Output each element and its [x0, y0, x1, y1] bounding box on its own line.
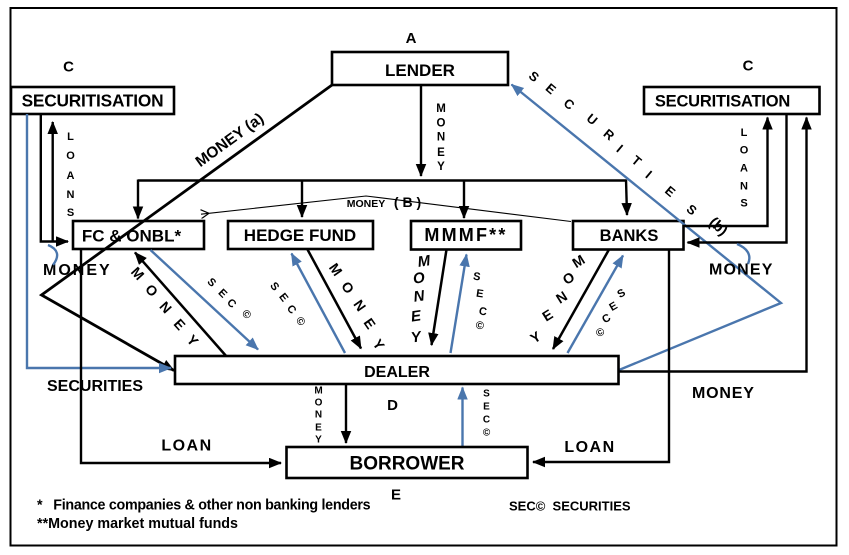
svg-text:HEDGE FUND: HEDGE FUND [244, 226, 356, 245]
svg-text:Y: Y [315, 435, 322, 446]
svg-text:C: C [63, 59, 74, 76]
svg-text:LENDER: LENDER [385, 61, 455, 80]
svg-text:MONEY: MONEY [692, 385, 755, 402]
svg-text:E: E [483, 402, 490, 413]
svg-text:LOAN: LOAN [161, 437, 212, 454]
svg-text:Y: Y [437, 161, 445, 173]
svg-text:L: L [67, 131, 74, 143]
svg-text:S: S [740, 198, 747, 210]
svg-text:MMMF**: MMMF** [424, 225, 507, 245]
svg-text:©: © [483, 428, 491, 439]
svg-text:BANKS: BANKS [600, 227, 659, 245]
svg-text:BORROWER: BORROWER [349, 454, 464, 475]
svg-text:SECURITIES: SECURITIES [47, 378, 143, 395]
svg-text:MONEY: MONEY [709, 261, 774, 278]
svg-text:S: S [67, 207, 74, 219]
svg-text:N: N [437, 132, 445, 144]
svg-text:O: O [66, 150, 75, 162]
svg-text:E: E [391, 486, 401, 503]
svg-text:©: © [475, 319, 485, 332]
svg-text:O: O [315, 398, 323, 409]
svg-text:C: C [483, 415, 490, 426]
svg-text:MONEY: MONEY [347, 198, 386, 210]
svg-text:M: M [436, 103, 446, 115]
svg-text:N: N [67, 189, 75, 201]
svg-text:N: N [315, 410, 322, 421]
svg-text:C: C [478, 305, 488, 318]
svg-text:S: S [483, 389, 490, 400]
svg-text:SEC© SECURITIES: SEC© SECURITIES [509, 499, 631, 514]
svg-text:SECURITISATION: SECURITISATION [22, 91, 164, 111]
svg-text:* Finance companies & other: * Finance companies & other non banking … [37, 498, 371, 514]
svg-text:O: O [740, 145, 749, 157]
svg-text:C: C [743, 58, 754, 75]
svg-text:M: M [314, 386, 322, 397]
svg-text:LOAN: LOAN [564, 439, 615, 456]
svg-text:E: E [437, 147, 445, 159]
svg-text:SECURITISATION: SECURITISATION [655, 93, 790, 111]
svg-text:N: N [740, 181, 748, 193]
svg-text:A: A [406, 30, 417, 47]
svg-text:( B ): ( B ) [394, 194, 421, 210]
svg-text:O: O [437, 118, 446, 130]
svg-text:A: A [740, 163, 748, 175]
svg-text:DEALER: DEALER [364, 364, 430, 381]
svg-text:A: A [67, 170, 75, 182]
svg-text:E: E [315, 423, 322, 434]
svg-text:L: L [741, 127, 748, 139]
svg-text:**Money market mutual funds: **Money market mutual funds [37, 516, 238, 532]
svg-text:D: D [387, 397, 398, 414]
